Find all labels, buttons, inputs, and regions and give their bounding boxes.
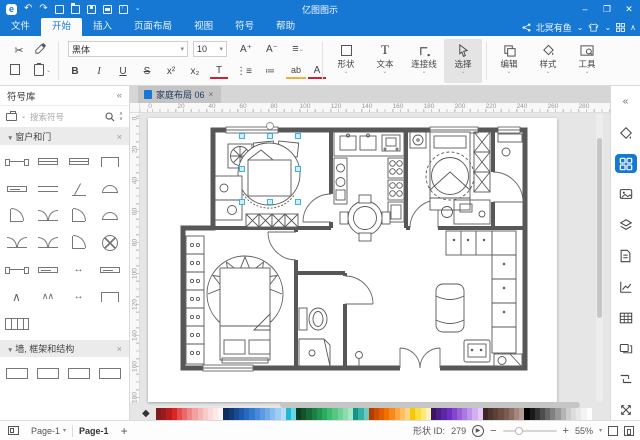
document-icon [144,90,152,99]
symbol-bay[interactable] [94,283,125,310]
format-painter-button[interactable] [34,42,47,55]
symbol-frame[interactable] [94,360,125,387]
symbol-door[interactable] [63,229,94,256]
symbol-frame[interactable] [63,360,94,387]
symbol-double-door[interactable] [1,229,32,256]
underline-button[interactable]: U [114,63,132,79]
customize-toolbar-caret-icon[interactable]: ⌄ [135,4,141,14]
table-panel-icon[interactable] [615,308,637,328]
quick-access-toolbar: e ↶ ↷ ⌄ [0,4,141,15]
symbol-frame-grid[interactable] [1,310,32,337]
tab-symbols[interactable]: 符号 [224,18,265,36]
color-swatches [156,408,592,420]
bullet-list-button[interactable]: ≔ [260,63,280,79]
text-icon: T [381,41,389,59]
tools-tool[interactable]: 工具⌄ [568,39,606,83]
ruler-h-label: 120 [331,103,342,110]
category-caret-icon[interactable]: ⌄ [21,113,26,120]
font-family-select[interactable]: 黑体▾ [68,41,188,57]
right-panel-strip: « [610,86,640,420]
ruler-h-label: 240 [517,103,528,110]
edraw-app: e ↶ ↷ ⌄ 亿图图示 – ❐ ✕ 文件 开始 插入 页面布局 视图 符号 帮… [0,0,640,440]
ruler-h-label: 220 [486,103,497,110]
apps-grid-icon[interactable] [616,23,625,32]
undo-button[interactable]: ↶ [24,4,32,14]
notes-panel-icon[interactable] [615,246,637,266]
zoom-level[interactable]: 55% [575,426,593,436]
symbol-tent[interactable] [1,283,32,310]
shape-tool[interactable]: 形状⌄ [327,39,365,83]
tab-view[interactable]: 视图 [183,18,224,36]
ribbon-tabs: 文件 开始 插入 页面布局 视图 符号 帮助 北冥有鱼 ⌄ ⌄ ∧ [0,18,640,36]
paint-bucket-icon [542,41,555,59]
bold-button[interactable]: B [66,63,84,79]
library-category-icon[interactable] [6,113,17,121]
connector-icon [418,41,431,59]
share-icon[interactable] [522,23,531,32]
section-close-icon[interactable]: × [117,132,122,142]
user-caret-icon[interactable]: ⌄ [577,23,584,32]
ruler-v-label: 80 [132,236,139,250]
symbol-door[interactable] [1,202,32,229]
search-icon[interactable] [105,112,115,122]
color-swatch[interactable] [587,408,592,420]
copy-button[interactable] [10,64,20,75]
symbol-frame[interactable] [32,360,63,387]
ruler-v-label: 40 [132,174,139,188]
page-tab[interactable]: Page-1 [73,426,115,436]
vertical-scrollbar[interactable] [596,113,603,402]
ruler-v-label: 60 [132,205,139,219]
zoom-slider[interactable] [503,430,557,432]
symbol-halfround[interactable] [94,175,125,202]
symbol-library-panel: 符号库 « ⌄ 搜索符号 ∧∨ ▼ 窗户和门 × ▼ 墙, 框架和结构 × [0,86,130,420]
shape-icon [341,41,352,59]
theme-skin-icon[interactable] [588,23,599,32]
maximize-button[interactable]: ❐ [596,0,618,18]
color-palette: ◆ [142,408,610,420]
ruler-h-label: 180 [424,103,435,110]
symbol-library-icon[interactable] [615,154,637,174]
fullscreen-icon[interactable] [608,426,618,436]
paste-button[interactable]: ⌄ [34,64,51,76]
symbol-arrow[interactable] [63,256,94,283]
ruler-v-label: 180 [132,391,139,405]
text-align-button[interactable]: ≡⌄ [288,41,308,57]
ruler-h-label: 80 [270,103,277,110]
ruler-v-label: 20 [132,143,139,157]
scroll-arrows[interactable]: ∧∨ [119,112,123,122]
symbol-leaf[interactable] [63,175,94,202]
layers-panel-icon[interactable] [615,215,637,235]
tab-home[interactable]: 开始 [41,18,82,36]
symbol-slider[interactable] [32,256,63,283]
decrease-font-button[interactable]: A⁻ [262,41,282,57]
ruler-v-label: 100 [132,267,139,281]
symbol-sash[interactable] [1,256,32,283]
symbol-sash[interactable] [1,148,32,175]
user-account[interactable]: 北冥有鱼 [536,21,572,34]
theme-caret-icon[interactable]: ⌄ [604,23,611,32]
symbol-window[interactable] [32,148,63,175]
symbol-revolving[interactable] [94,229,125,256]
tab-file[interactable]: 文件 [0,18,41,36]
symbol-frame[interactable] [1,360,32,387]
ribbon-toolbar: ✂ ⌄ 黑体▾ 10▾ A⁺ A⁻ ≡⌄ B I U S x² x₂ T ⋮≡ … [0,36,640,86]
new-document-icon[interactable] [55,5,64,14]
ruler-h-label: 20 [177,103,184,110]
symbol-grid [0,145,129,340]
superscript-button[interactable]: x² [162,63,180,79]
italic-button[interactable]: I [90,63,108,79]
ruler-h-label: 200 [455,103,466,110]
drawing-page[interactable] [148,118,557,402]
increase-font-button[interactable]: A⁺ [236,41,256,57]
bedroom3-furniture [186,236,283,364]
ruler-h-label: 140 [362,103,373,110]
ruler-h-label: 280 [579,103,590,110]
symbol-door[interactable] [63,202,94,229]
bedroom2-furniture [410,132,522,224]
symbol-double-door[interactable] [32,229,63,256]
connector-panel-icon[interactable] [615,369,637,389]
tab-help[interactable]: 帮助 [265,18,306,36]
add-page-button[interactable]: + [115,424,134,438]
document-tab[interactable]: 家庭布局 06 × [138,86,221,103]
highlight-button[interactable]: ab [286,63,306,79]
ruler-h-label: 100 [300,103,311,110]
symbol-arrow[interactable] [63,283,94,310]
symbol-window[interactable] [63,148,94,175]
export-icon[interactable] [119,5,128,14]
document-tab-bar: 家庭布局 06 × [130,86,610,103]
section-windows-doors[interactable]: ▼ 窗户和门 × [0,128,129,145]
ruler-v-label: 0 [132,112,139,126]
connector-tool[interactable]: 连接线⌄ [405,39,443,83]
symbol-slider[interactable] [94,256,125,283]
symbol-halfround[interactable] [94,202,125,229]
app-logo-icon: e [6,4,17,15]
presentation-play-icon[interactable]: ▶ [472,425,484,437]
zoom-out-button[interactable]: − [490,425,496,437]
chart-panel-icon[interactable] [615,277,637,297]
ruler-h-label: 260 [548,103,559,110]
symbol-tent2[interactable] [32,283,63,310]
ruler-h-label: 0 [148,103,152,110]
status-bar: Page-1▾ Page-1 + 形状 ID: 279 ▶ − + 55% ▾ [0,420,640,440]
open-file-icon[interactable] [71,5,80,14]
select-cursor-icon [457,41,470,59]
redo-button[interactable]: ↷ [39,4,47,14]
tools-icon [580,41,594,59]
strikethrough-button[interactable]: S [138,63,156,79]
page-select-menu[interactable]: Page-1▾ [25,426,72,436]
section-close-icon[interactable]: × [117,344,122,354]
format-paint-icon[interactable] [615,123,637,143]
page-overview-icon[interactable] [8,426,19,435]
tab-close-icon[interactable]: × [209,90,214,99]
symbol-slider[interactable] [1,175,32,202]
horizontal-ruler: 020406080100120140160180200220240260280 [140,103,610,113]
close-button[interactable]: ✕ [618,0,640,18]
transform-panel-icon[interactable] [615,400,637,420]
subscript-button[interactable]: x₂ [186,63,204,79]
edit-icon [503,41,516,59]
shape-id-value: 279 [451,426,466,436]
fill-color-icon[interactable]: ◆ [142,408,152,420]
ruler-h-label: 160 [393,103,404,110]
clipart-panel-icon[interactable] [615,339,637,359]
font-color-button[interactable]: A [308,63,326,79]
shape-id-label: 形状 ID: [413,424,445,437]
floor-plan[interactable] [148,118,557,402]
symbol-library-title: 符号库 [7,89,36,103]
ruler-v-label: 140 [132,329,139,343]
kitchen-furniture [334,132,404,241]
ruler-v-label: 160 [132,360,139,374]
print-icon[interactable] [103,5,112,14]
bathroom-fixtures [299,308,363,368]
wall-symbol-grid [0,357,129,390]
collapse-panel-icon[interactable]: « [117,90,122,101]
font-size-select[interactable]: 10▾ [193,41,227,57]
zoom-in-button[interactable]: + [563,425,569,437]
text-tool[interactable]: T 文本⌄ [366,39,404,83]
tab-page-layout[interactable]: 页面布局 [123,18,183,36]
style-tool[interactable]: 样式⌄ [529,39,567,83]
fit-to-window-icon[interactable] [624,426,634,436]
section-walls-structure[interactable]: ▼ 墙, 框架和结构 × [0,340,129,357]
symbol-opening[interactable] [32,175,63,202]
ruler-h-label: 40 [208,103,215,110]
vertical-ruler: 020406080100120140160180 [130,113,140,402]
text-style-button[interactable]: T [210,63,228,79]
minimize-button[interactable]: – [574,0,596,18]
collapse-right-panel-icon[interactable]: « [615,92,637,112]
ruler-h-label: 60 [239,103,246,110]
edit-tool[interactable]: 编辑⌄ [490,39,528,83]
canvas-area: 家庭布局 06 × 020406080100120140160180200220… [130,86,610,420]
zoom-caret-icon[interactable]: ▾ [599,427,602,434]
cut-button[interactable]: ✂ [10,42,28,58]
save-icon[interactable] [87,5,96,14]
select-tool[interactable]: 选择⌄ [444,39,482,83]
symbol-double-door[interactable] [32,202,63,229]
symbol-bay[interactable] [94,148,125,175]
ruler-v-label: 120 [132,298,139,312]
line-spacing-button[interactable]: ⋮≡ [234,63,254,79]
collapse-ribbon-icon[interactable]: ∧ [630,23,636,32]
image-panel-icon[interactable] [615,184,637,204]
bedroom1-furniture [215,141,300,227]
title-bar: e ↶ ↷ ⌄ 亿图图示 – ❐ ✕ [0,0,640,18]
search-symbols-input[interactable]: 搜索符号 [30,111,101,123]
living-room-furniture [436,231,522,367]
tab-insert[interactable]: 插入 [82,18,123,36]
